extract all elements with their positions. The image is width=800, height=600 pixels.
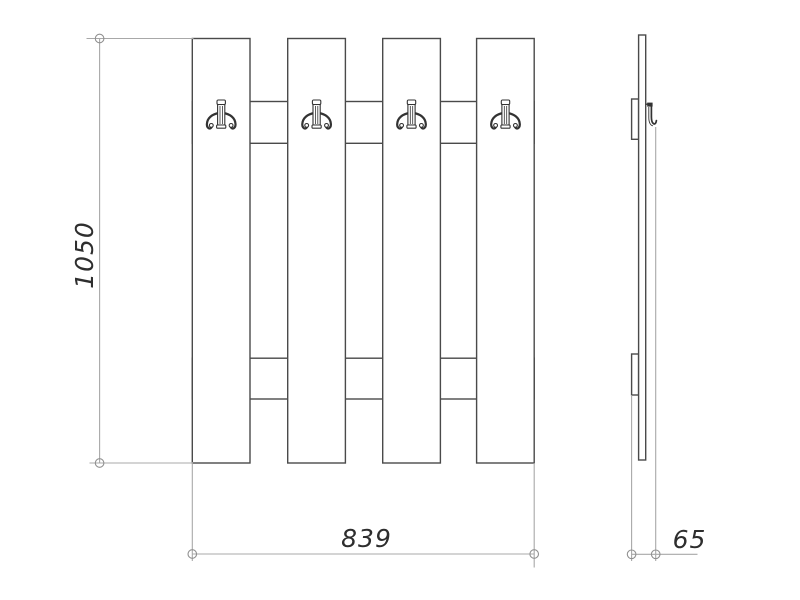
dimension-height-value: 1050 — [70, 221, 99, 289]
side-rail-bottom — [632, 354, 639, 395]
side-view — [632, 35, 657, 460]
dimension-width-value: 839 — [341, 524, 392, 553]
coat-rack-drawing: 1050 839 65 — [0, 0, 800, 600]
front-view — [192, 39, 534, 464]
side-slat — [639, 35, 646, 460]
coat-hook-profile-icon — [646, 103, 657, 126]
dimension-depth-value: 65 — [673, 525, 707, 554]
dimension-width: 839 — [188, 462, 539, 568]
side-rail-top — [632, 99, 639, 139]
dimension-height: 1050 — [70, 34, 194, 467]
technical-drawing-canvas: 1050 839 65 — [0, 0, 800, 600]
